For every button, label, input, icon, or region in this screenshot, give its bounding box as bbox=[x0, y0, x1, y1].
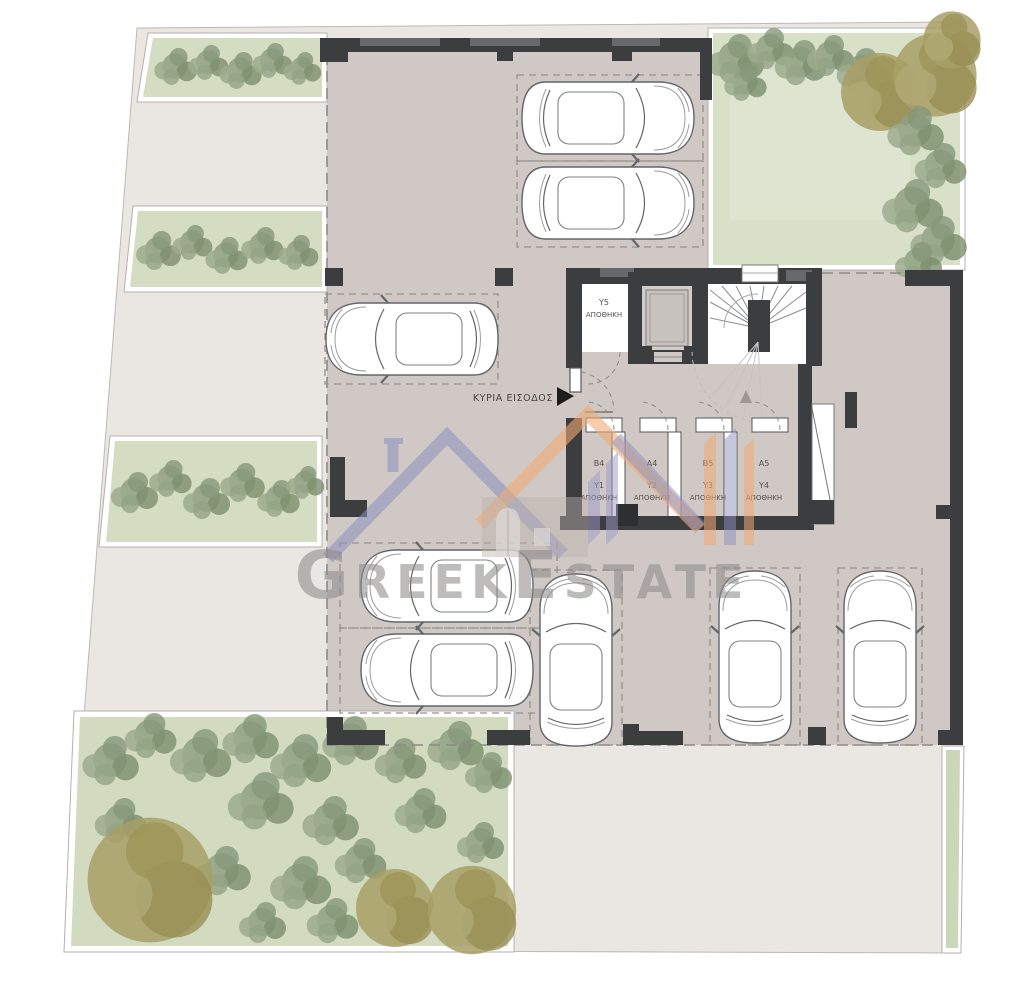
car bbox=[326, 295, 498, 383]
storage-4-unit: A5 bbox=[759, 459, 770, 468]
storage-4-code: Y4 bbox=[758, 481, 769, 490]
storage-y5-word: ΑΠΟΘΗΚΗ bbox=[586, 311, 622, 319]
planter-strip-1 bbox=[137, 33, 327, 102]
planter-strip-right bbox=[942, 746, 964, 953]
floor-plan-page: Y5 ΑΠΟΘΗΚΗ B4 Y1 ΑΠΟΘΗΚΗ A4 Y2 ΑΠΟΘΗΚΗ B… bbox=[0, 0, 1024, 995]
garden-top-right bbox=[707, 11, 980, 283]
stair-newel bbox=[748, 300, 770, 352]
planter-strip-2 bbox=[124, 206, 327, 292]
floor-plan-svg: Y5 ΑΠΟΘΗΚΗ B4 Y1 ΑΠΟΘΗΚΗ A4 Y2 ΑΠΟΘΗΚΗ B… bbox=[0, 0, 1024, 995]
main-entrance-label: ΚΥΡΙΑ ΕΙΣΟΔΟΣ bbox=[473, 393, 553, 404]
elevator bbox=[628, 272, 708, 364]
storage-y5-code: Y5 bbox=[598, 298, 609, 307]
car bbox=[836, 571, 924, 743]
garden-bottom bbox=[64, 711, 516, 954]
ramp bbox=[810, 404, 834, 524]
planter-strip-3 bbox=[99, 436, 324, 547]
car bbox=[522, 159, 694, 247]
car bbox=[361, 626, 533, 714]
window bbox=[742, 265, 778, 282]
watermark-text: GreekEstate bbox=[295, 537, 750, 614]
storage-1-unit: B4 bbox=[594, 459, 605, 468]
car bbox=[522, 74, 694, 162]
